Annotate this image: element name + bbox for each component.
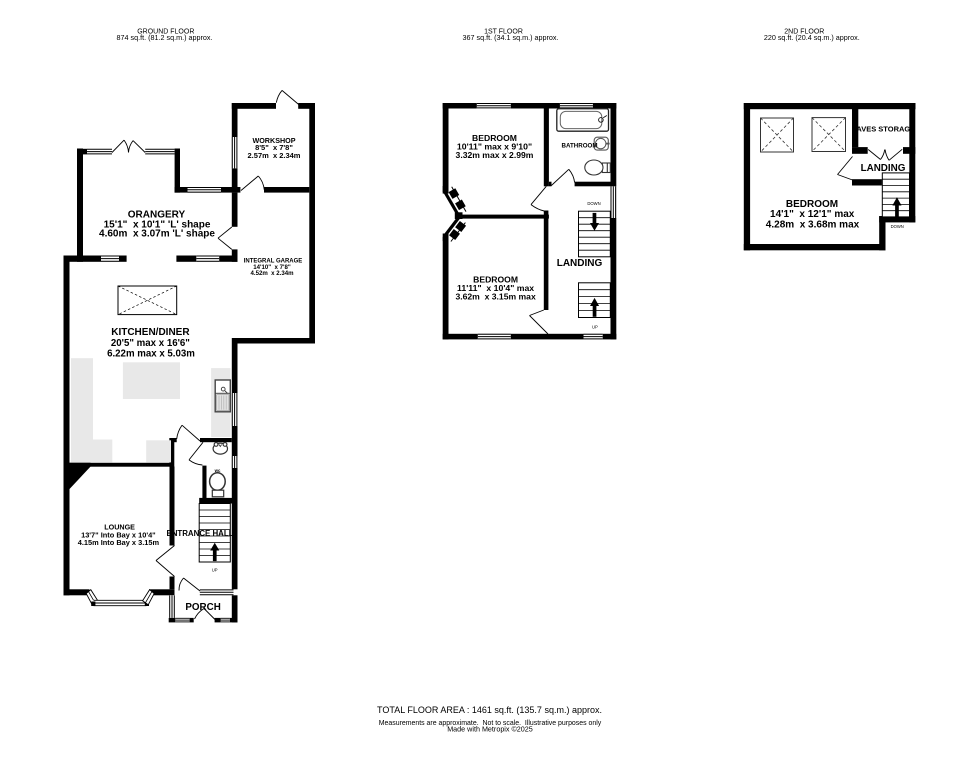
svg-text:4.15m Into Bay x 3.15m: 4.15m Into Bay x 3.15m xyxy=(78,538,160,547)
svg-text:4.52m x 2.34m: 4.52m x 2.34m xyxy=(250,270,294,277)
svg-text:DOWN: DOWN xyxy=(891,224,904,229)
svg-text:LANDING: LANDING xyxy=(861,163,906,174)
svg-text:Made with Metropix ©2025: Made with Metropix ©2025 xyxy=(447,725,533,734)
svg-text:6.22m max x 5.03m: 6.22m max x 5.03m xyxy=(107,348,195,359)
svg-text:2.57m x 2.34m: 2.57m x 2.34m xyxy=(248,151,301,160)
svg-text:AVES STORAG: AVES STORAG xyxy=(856,124,910,133)
svg-text:20'5" max x 16'6": 20'5" max x 16'6" xyxy=(111,338,190,349)
svg-text:PORCH: PORCH xyxy=(185,602,220,613)
svg-text:UP: UP xyxy=(592,325,598,330)
svg-text:874 sq.ft. (81.2 sq.m.) approx: 874 sq.ft. (81.2 sq.m.) approx. xyxy=(117,33,213,42)
svg-text:3.32m max x 2.99m: 3.32m max x 2.99m xyxy=(456,150,534,160)
svg-text:UP: UP xyxy=(212,567,218,572)
svg-text:220 sq.ft. (20.4 sq.m.) approx: 220 sq.ft. (20.4 sq.m.) approx. xyxy=(764,33,860,42)
svg-text:KITCHEN/DINER: KITCHEN/DINER xyxy=(111,327,190,338)
svg-text:ENTRANCE HALL: ENTRANCE HALL xyxy=(166,529,233,538)
svg-text:DOWN: DOWN xyxy=(587,201,600,206)
svg-text:BEDROOM: BEDROOM xyxy=(786,199,838,210)
svg-text:TOTAL FLOOR AREA : 1461 sq.ft.: TOTAL FLOOR AREA : 1461 sq.ft. (135.7 sq… xyxy=(377,705,602,715)
svg-text:14'1" x 12'1" max: 14'1" x 12'1" max xyxy=(770,209,855,220)
svg-text:3.62m x 3.15m max: 3.62m x 3.15m max xyxy=(455,291,535,301)
svg-text:4.60m x 3.07m 'L' shape: 4.60m x 3.07m 'L' shape xyxy=(99,229,215,240)
svg-text:LANDING: LANDING xyxy=(557,258,603,269)
svg-text:BATHROOM: BATHROOM xyxy=(562,143,598,150)
svg-text:367 sq.ft. (34.1 sq.m.) approx: 367 sq.ft. (34.1 sq.m.) approx. xyxy=(463,33,559,42)
svg-text:4.28m x 3.68m max: 4.28m x 3.68m max xyxy=(766,220,860,231)
